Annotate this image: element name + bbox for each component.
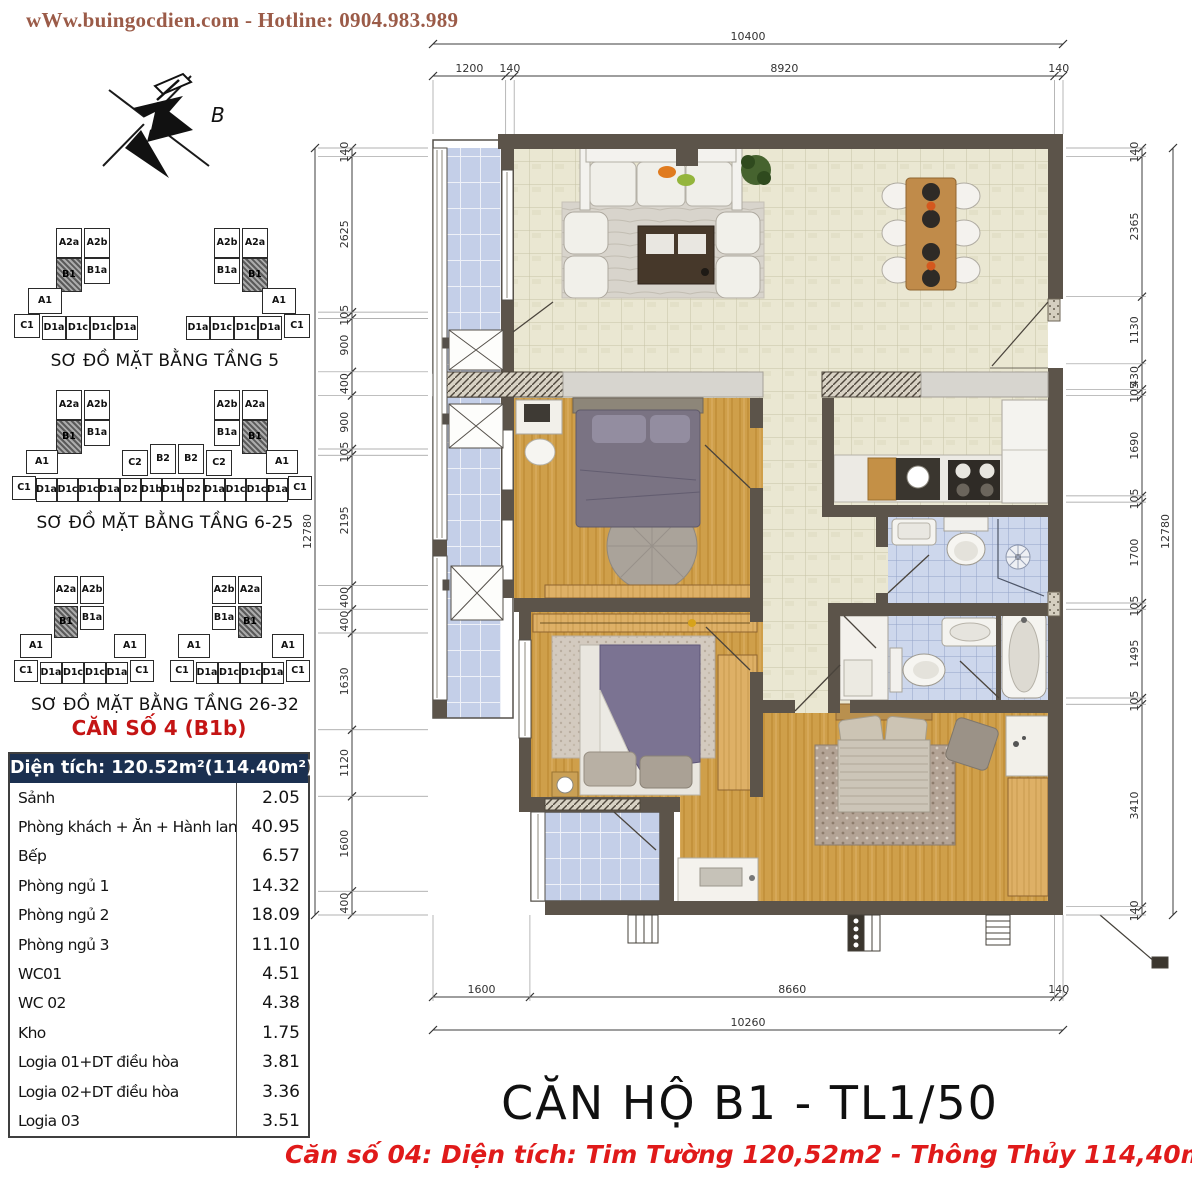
room-area-value: 4.38 xyxy=(236,989,308,1018)
unit-box-d1c: D1c xyxy=(210,316,234,340)
floor-diagram-tang26-32: A2aB1A2bB1aA1A1C1D1aD1cD1cD1aC1A2bB1aA2a… xyxy=(12,576,318,715)
room-name: Phòng ngủ 3 xyxy=(10,936,236,954)
room-area-value: 3.81 xyxy=(236,1048,308,1077)
unit-box-b1a: B1a xyxy=(80,606,104,630)
room-name: WC01 xyxy=(10,965,236,983)
room-area-value: 40.95 xyxy=(236,812,308,841)
unit-box-a2b: A2b xyxy=(212,576,236,604)
unit-box-a2b: A2b xyxy=(80,576,104,604)
unit-box-d1a: D1a xyxy=(258,316,282,340)
living-room-furniture xyxy=(562,148,771,298)
room-name: Sảnh xyxy=(10,789,236,807)
area-table: Diện tích: 120.52m²(114.40m²) Sảnh2.05Ph… xyxy=(8,752,310,1138)
unit-box-d1a: D1a xyxy=(106,662,128,684)
room-name: Phòng ngủ 2 xyxy=(10,906,236,924)
svg-text:400: 400 xyxy=(338,587,351,608)
unit-box-b1a: B1a xyxy=(84,420,110,446)
area-row: WC 024.38 xyxy=(10,989,308,1018)
wardrobe1 xyxy=(545,585,757,598)
unit-box-b1: B1 xyxy=(242,258,268,292)
room-name: Logia 01+DT điều hòa xyxy=(10,1053,236,1071)
unit-box-d2: D2 xyxy=(183,478,204,502)
svg-text:140: 140 xyxy=(338,142,351,163)
unit-box-c1: C1 xyxy=(170,660,194,682)
unit-box-b1: B1 xyxy=(56,258,82,292)
vanity xyxy=(1006,716,1048,776)
floor-diagram-tang5: A2aB1A2bB1aA1C1D1aD1cD1cD1aA2bB1aA2aB1A1… xyxy=(12,226,318,371)
unit-box-b1a: B1a xyxy=(212,606,236,630)
room-name: Phòng ngủ 1 xyxy=(10,877,236,895)
unit-box-d1c: D1c xyxy=(225,478,246,502)
svg-text:105: 105 xyxy=(338,305,351,326)
svg-text:140: 140 xyxy=(499,62,520,75)
unit-box-d1c: D1c xyxy=(234,316,258,340)
room-area-value: 3.36 xyxy=(236,1077,308,1106)
unit-box-a2a: A2a xyxy=(56,228,82,258)
unit-box-c1: C1 xyxy=(12,476,36,500)
sofa xyxy=(586,148,736,162)
bedroom3-closet xyxy=(1008,778,1048,896)
unit-box-a1: A1 xyxy=(28,288,62,314)
svg-text:140: 140 xyxy=(1128,142,1141,163)
svg-text:3410: 3410 xyxy=(1128,791,1141,819)
svg-text:8660: 8660 xyxy=(778,983,806,996)
section-markers xyxy=(628,915,1168,968)
svg-text:10400: 10400 xyxy=(731,30,766,43)
area-table-header: Diện tích: 120.52m²(114.40m²) xyxy=(10,754,308,783)
room-name: Kho xyxy=(10,1024,236,1042)
unit-box-d1a: D1a xyxy=(186,316,210,340)
diagram-caption: SƠ ĐỒ MẶT BẰNG TẦNG 6-25 xyxy=(12,513,318,533)
room-area-value: 6.57 xyxy=(236,842,308,871)
svg-text:2625: 2625 xyxy=(338,220,351,248)
unit-box-a1: A1 xyxy=(178,634,210,658)
unit-box-a2b: A2b xyxy=(214,390,240,420)
svg-text:1600: 1600 xyxy=(338,830,351,858)
unit-box-d1c: D1c xyxy=(57,478,78,502)
unit-box-d1c: D1c xyxy=(84,662,106,684)
unit-box-c1: C1 xyxy=(284,314,310,338)
svg-text:1600: 1600 xyxy=(467,983,495,996)
unit-box-a1: A1 xyxy=(272,634,304,658)
armchair xyxy=(564,212,608,254)
unit-box-d1a: D1a xyxy=(204,478,225,502)
diagram-caption: SƠ ĐỒ MẶT BẰNG TẦNG 5 xyxy=(12,351,318,371)
unit-box-d1c: D1c xyxy=(78,478,99,502)
area-row: Phòng khách + Ăn + Hành lang40.95 xyxy=(10,812,308,841)
unit-box-d1a: D1a xyxy=(196,662,218,684)
area-row: Phòng ngủ 311.10 xyxy=(10,930,308,959)
unit-box-a2b: A2b xyxy=(84,390,110,420)
unit-box-d2: D2 xyxy=(120,478,141,502)
unit-box-a2a: A2a xyxy=(242,228,268,258)
unit-box-b1: B1 xyxy=(238,606,262,638)
unit-box-a2b: A2b xyxy=(214,228,240,258)
unit-box-c1: C1 xyxy=(130,660,154,682)
plan-subtitle: Căn số 04: Diện tích: Tim Tường 120,52m2… xyxy=(285,1140,1192,1169)
armchair xyxy=(716,256,760,298)
room-area-value: 2.05 xyxy=(236,783,308,812)
fridge xyxy=(1002,400,1048,503)
unit-number-title: CĂN SỐ 4 (B1b) xyxy=(8,716,310,740)
floor-diagram-tang6-25: A2aB1A2bB1aA1C2B2B2C2A2bB1aA2aB1A1C1D1aD… xyxy=(12,388,318,533)
unit-box-c2: C2 xyxy=(206,450,232,476)
armchair xyxy=(716,212,760,254)
area-row: Logia 033.51 xyxy=(10,1106,308,1135)
svg-text:400: 400 xyxy=(338,893,351,914)
dining-set xyxy=(882,178,980,290)
room-area-value: 18.09 xyxy=(236,901,308,930)
unit-box-d1a: D1a xyxy=(267,478,288,502)
area-row: Bếp6.57 xyxy=(10,842,308,871)
svg-text:8920: 8920 xyxy=(770,62,798,75)
unit-box-d1a: D1a xyxy=(42,316,66,340)
unit-box-d1c: D1c xyxy=(240,662,262,684)
unit-box-a1: A1 xyxy=(114,634,146,658)
svg-text:1630: 1630 xyxy=(338,667,351,695)
unit-box-c1: C1 xyxy=(14,314,40,338)
area-row: Logia 02+DT điều hòa3.36 xyxy=(10,1077,308,1106)
area-table-body: Sảnh2.05Phòng khách + Ăn + Hành lang40.9… xyxy=(10,783,308,1136)
room-area-value: 3.51 xyxy=(236,1106,308,1135)
plan-title: CĂN HỘ B1 - TL1/50 xyxy=(430,1076,1070,1130)
svg-text:105: 105 xyxy=(1128,382,1141,403)
svg-text:105: 105 xyxy=(338,442,351,463)
logia03-floor xyxy=(545,812,660,901)
svg-text:2195: 2195 xyxy=(338,506,351,534)
laptop xyxy=(524,404,550,422)
unit-box-c1: C1 xyxy=(14,660,38,682)
area-row: Phòng ngủ 218.09 xyxy=(10,901,308,930)
unit-box-b1a: B1a xyxy=(214,258,240,284)
svg-text:1700: 1700 xyxy=(1128,539,1141,567)
svg-text:1130: 1130 xyxy=(1128,316,1141,344)
lamp xyxy=(557,777,573,793)
unit-box-d1a: D1a xyxy=(114,316,138,340)
compass-north-icon: B xyxy=(95,68,245,188)
unit-box-a2a: A2a xyxy=(242,390,268,420)
unit-box-d1b: D1b xyxy=(162,478,183,502)
unit-box-a1: A1 xyxy=(20,634,52,658)
unit-box-d1c: D1c xyxy=(218,662,240,684)
svg-text:2365: 2365 xyxy=(1128,213,1141,241)
svg-text:140: 140 xyxy=(1128,900,1141,921)
unit-box-c2: C2 xyxy=(122,450,148,476)
room-area-value: 14.32 xyxy=(236,871,308,900)
svg-text:1120: 1120 xyxy=(338,749,351,777)
unit-box-d1c: D1c xyxy=(62,662,84,684)
area-row: WC014.51 xyxy=(10,959,308,988)
room-name: Bếp xyxy=(10,847,236,865)
desk-chair xyxy=(525,439,555,465)
room-name: Logia 03 xyxy=(10,1112,236,1130)
svg-text:10260: 10260 xyxy=(731,1016,766,1029)
svg-text:1690: 1690 xyxy=(1128,432,1141,460)
unit-box-d1a: D1a xyxy=(262,662,284,684)
svg-text:900: 900 xyxy=(338,335,351,356)
unit-box-d1a: D1a xyxy=(40,662,62,684)
svg-text:140: 140 xyxy=(1048,983,1069,996)
unit-box-a1: A1 xyxy=(262,288,296,314)
svg-text:1200: 1200 xyxy=(455,62,483,75)
unit-box-d1c: D1c xyxy=(90,316,114,340)
room-name: WC 02 xyxy=(10,994,236,1012)
unit-box-a2a: A2a xyxy=(54,576,78,604)
area-row: Phòng ngủ 114.32 xyxy=(10,871,308,900)
svg-text:400: 400 xyxy=(338,611,351,632)
unit-box-c1: C1 xyxy=(288,476,312,500)
svg-text:900: 900 xyxy=(338,412,351,433)
unit-box-d1a: D1a xyxy=(36,478,57,502)
floorplan-page: 1040012001408920140127801402625105900400… xyxy=(0,0,1192,1200)
unit-box-b2: B2 xyxy=(150,444,176,474)
unit-box-d1c: D1c xyxy=(66,316,90,340)
unit-box-d1c: D1c xyxy=(246,478,267,502)
svg-text:105: 105 xyxy=(1128,488,1141,509)
unit-box-a1: A1 xyxy=(266,450,298,474)
unit-box-b1a: B1a xyxy=(84,258,110,284)
unit-box-a2a: A2a xyxy=(56,390,82,420)
compass-label: B xyxy=(211,103,225,127)
unit-box-b1: B1 xyxy=(242,420,268,454)
svg-text:140: 140 xyxy=(1048,62,1069,75)
armchair xyxy=(564,256,608,298)
unit-box-b1a: B1a xyxy=(214,420,240,446)
unit-box-d1a: D1a xyxy=(99,478,120,502)
area-row: Logia 01+DT điều hòa3.81 xyxy=(10,1048,308,1077)
area-row: Kho1.75 xyxy=(10,1018,308,1047)
unit-box-a2a: A2a xyxy=(238,576,262,604)
diagram-caption: SƠ ĐỒ MẶT BẰNG TẦNG 26-32 xyxy=(12,695,318,715)
unit-box-a2b: A2b xyxy=(84,228,110,258)
unit-box-c1: C1 xyxy=(286,660,310,682)
room-name: Phòng khách + Ăn + Hành lang xyxy=(10,818,236,836)
room-area-value: 11.10 xyxy=(236,930,308,959)
unit-box-b1: B1 xyxy=(54,606,78,638)
unit-box-d1b: D1b xyxy=(141,478,162,502)
website-hotline-text: wWw.buingocdien.com - Hotline: 0904.983.… xyxy=(26,8,458,33)
room-area-value: 1.75 xyxy=(236,1018,308,1047)
unit-box-b1: B1 xyxy=(56,420,82,454)
room-name: Logia 02+DT điều hòa xyxy=(10,1083,236,1101)
room-area-value: 4.51 xyxy=(236,959,308,988)
kho-shelf xyxy=(844,660,872,696)
svg-text:105: 105 xyxy=(1128,596,1141,617)
keyboard xyxy=(700,868,742,886)
svg-text:12780: 12780 xyxy=(1159,514,1172,549)
unit-box-b2: B2 xyxy=(178,444,204,474)
svg-text:400: 400 xyxy=(338,373,351,394)
fruit-bowl xyxy=(658,166,676,178)
bed3 xyxy=(838,740,930,812)
area-row: Sảnh2.05 xyxy=(10,783,308,812)
svg-text:1495: 1495 xyxy=(1128,640,1141,668)
unit-box-a1: A1 xyxy=(26,450,58,474)
svg-text:105: 105 xyxy=(1128,691,1141,712)
